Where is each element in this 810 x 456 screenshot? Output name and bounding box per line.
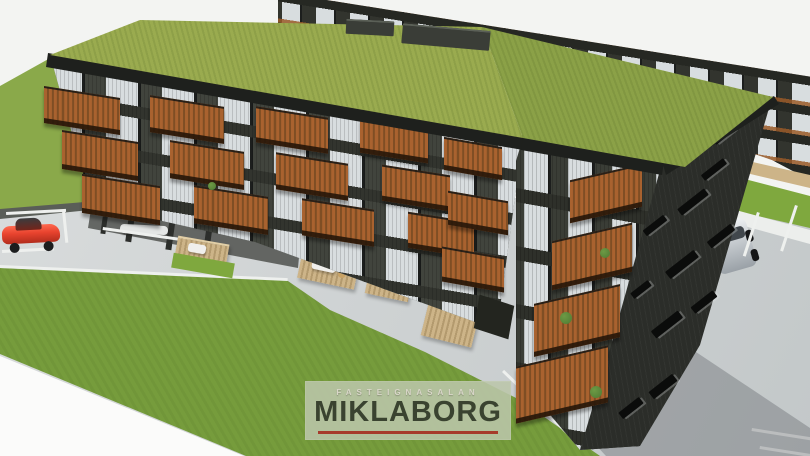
red-sports-car — [1, 217, 61, 254]
balcony-plant — [208, 182, 216, 190]
balcony-plant — [590, 386, 602, 398]
car-wheel — [43, 241, 54, 252]
brand-underline — [318, 431, 498, 434]
miklaborg-watermark: FASTEIGNASALAN MIKLABORG — [305, 381, 511, 440]
brand-name: MIKLABORG — [314, 398, 502, 427]
architectural-rendering: FASTEIGNASALAN MIKLABORG — [0, 0, 810, 456]
car-cabin — [15, 217, 42, 230]
car-wheel — [9, 243, 20, 254]
roof-skylight — [346, 19, 395, 36]
balcony-plant — [600, 248, 610, 258]
balcony-plant — [560, 312, 572, 324]
